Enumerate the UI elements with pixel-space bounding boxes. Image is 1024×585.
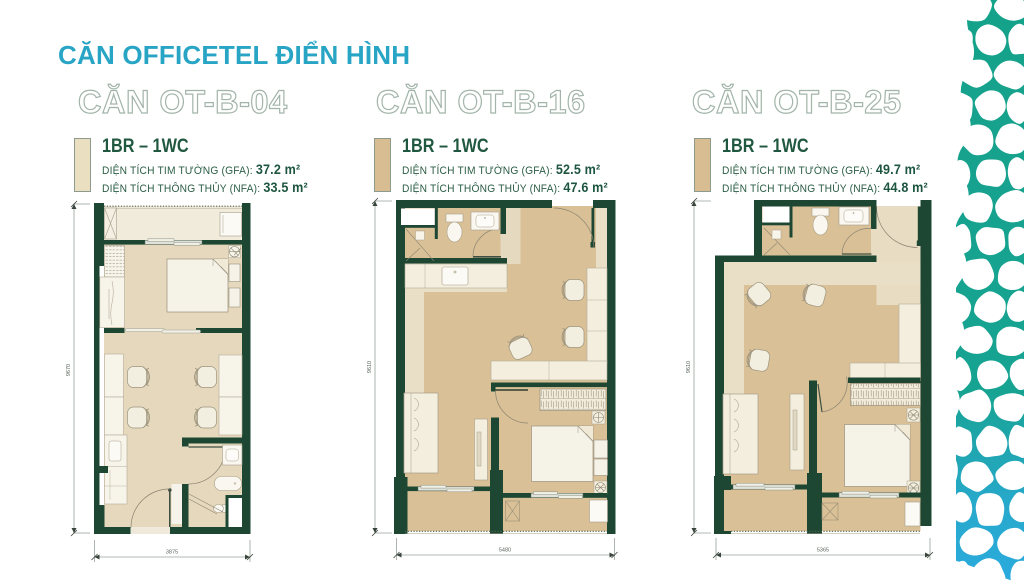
svg-text:5480: 5480 <box>499 548 511 554</box>
svg-text:9610: 9610 <box>686 361 692 373</box>
svg-text:3875: 3875 <box>166 550 178 556</box>
svg-text:9670: 9670 <box>66 364 72 376</box>
svg-text:9610: 9610 <box>367 361 373 373</box>
svg-text:5365: 5365 <box>817 548 829 554</box>
